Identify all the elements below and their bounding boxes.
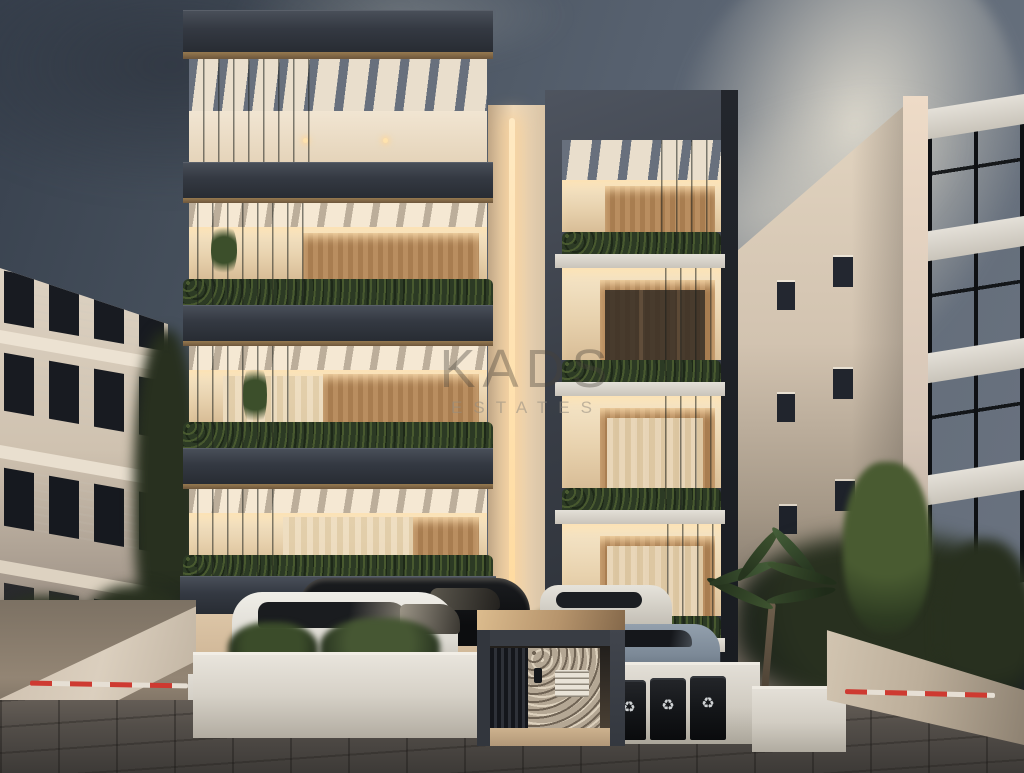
hanging-vines xyxy=(665,268,721,382)
hanging-vines xyxy=(203,59,313,162)
entrance-canopy xyxy=(477,610,625,632)
blue-gray-car-windows xyxy=(618,630,692,647)
vine-leaves xyxy=(211,220,237,280)
entrance-pillar xyxy=(477,630,490,746)
glass-band xyxy=(928,124,1024,231)
watermark-brand: KADS xyxy=(432,338,622,400)
glass-band xyxy=(928,246,1024,353)
balcony-slab xyxy=(183,448,493,484)
entrance-floor xyxy=(490,728,610,746)
recycle-icon: ♻ xyxy=(650,696,686,714)
balcony-slab xyxy=(555,254,725,268)
entrance-fascia xyxy=(477,630,625,646)
roof-trim xyxy=(183,52,493,59)
intercom-panel xyxy=(534,668,542,683)
mailboxes xyxy=(555,670,589,697)
parked-white-car-windows xyxy=(556,592,642,608)
small-window xyxy=(779,504,797,534)
balcony-slab xyxy=(183,305,493,341)
small-window xyxy=(833,255,853,287)
entrance-pillar xyxy=(610,630,625,746)
green-tree xyxy=(843,462,931,634)
ceiling-light xyxy=(383,138,388,143)
white-planter-wall xyxy=(193,652,479,738)
palm-frond xyxy=(766,584,837,607)
hanging-vines xyxy=(661,140,721,254)
glass-band xyxy=(928,368,1024,475)
wood-panel xyxy=(303,233,479,279)
slatted-gate xyxy=(490,648,528,728)
small-window xyxy=(777,280,795,310)
entrance-structure xyxy=(477,610,625,746)
watermark-subtitle: ESTATES xyxy=(438,398,616,418)
small-window xyxy=(777,392,795,422)
balcony-slab xyxy=(555,510,725,524)
hanging-vines xyxy=(665,396,721,510)
recycling-bin: ♻ xyxy=(650,678,686,740)
architectural-render-canvas: ♻ ♻ ♻ KADS ESTATES xyxy=(0,0,1024,773)
hanging-vines xyxy=(197,489,283,581)
vine-leaves xyxy=(243,360,267,430)
roof-slab xyxy=(183,10,493,52)
small-window xyxy=(833,367,853,399)
balcony-slab xyxy=(183,162,493,198)
